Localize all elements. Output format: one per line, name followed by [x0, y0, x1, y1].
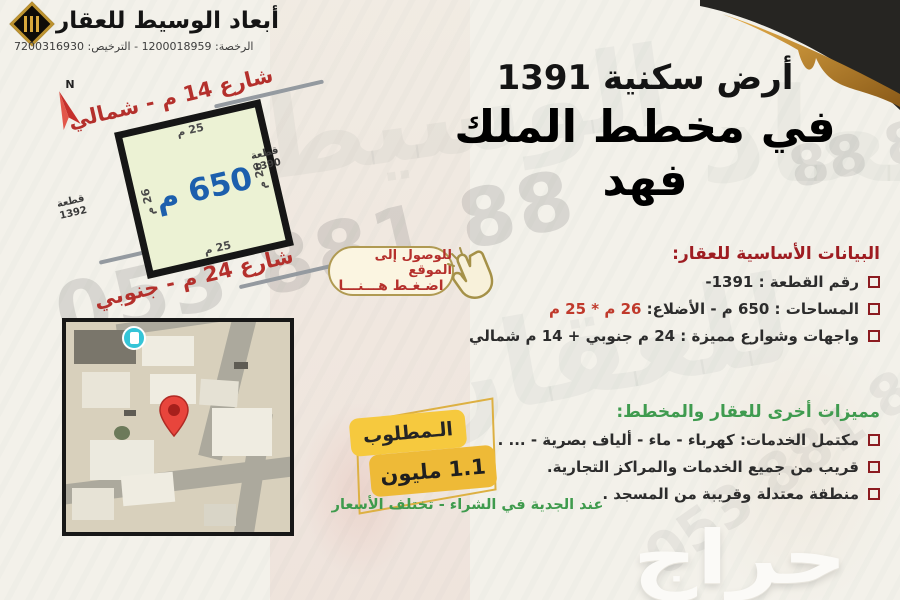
map-car	[234, 362, 248, 369]
flyer-canvas: الوسيط للعقار أبعاد 053 881 88 88 88 053…	[0, 0, 900, 600]
ad-title-line1: أرض سكنية 1391	[420, 58, 870, 98]
checkbox-icon	[868, 461, 880, 473]
map-poi-marker-icon	[122, 326, 146, 350]
map-building	[142, 336, 194, 366]
haraj-logo-watermark: حراج	[560, 515, 900, 600]
basic-info-section: البيانات الأساسية للعقار: رقم القطعة : 1…	[410, 244, 880, 354]
map-building	[212, 408, 272, 456]
checkbox-icon	[868, 488, 880, 500]
list-item: المساحات : 650 م - الأضلاع: 26 م * 25 م	[410, 300, 880, 318]
map-building	[199, 379, 239, 408]
ad-title: أرض سكنية 1391 في مخطط الملك فهد	[420, 58, 870, 206]
checkbox-icon	[868, 303, 880, 315]
list-item: رقم القطعة : 1391-	[410, 273, 880, 291]
satellite-map	[62, 318, 294, 536]
checkbox-icon	[868, 276, 880, 288]
map-building	[72, 488, 114, 520]
compass-n-label: N	[65, 78, 74, 91]
map-building	[204, 504, 236, 526]
map-building	[121, 472, 175, 506]
map-tree	[114, 426, 130, 440]
ad-title-line2: في مخطط الملك فهد	[420, 100, 870, 206]
neighbor-plot-1392: قطعة 1392	[56, 193, 88, 222]
price-disclaimer-note: عند الجدية في الشراء - تختلف الأسعار	[325, 497, 610, 513]
basic-info-heading: البيانات الأساسية للعقار:	[410, 244, 880, 264]
checkbox-icon	[868, 330, 880, 342]
map-car	[124, 410, 136, 416]
dimensions-highlight: 26 م * 25 م	[549, 300, 641, 318]
license-numbers: الرخصة: 1200018959 - الترخيص: 7200316930	[14, 40, 253, 53]
list-item: واجهات وشوارع مميزة : 24 م جنوبي + 14 م …	[410, 327, 880, 345]
map-location-pin-icon	[158, 394, 190, 438]
map-building	[82, 372, 130, 408]
brand-name: أبعاد الوسيط للعقار	[56, 8, 279, 34]
checkbox-icon	[868, 434, 880, 446]
neighbor-plot-1390: قطعة 1390	[250, 145, 282, 174]
